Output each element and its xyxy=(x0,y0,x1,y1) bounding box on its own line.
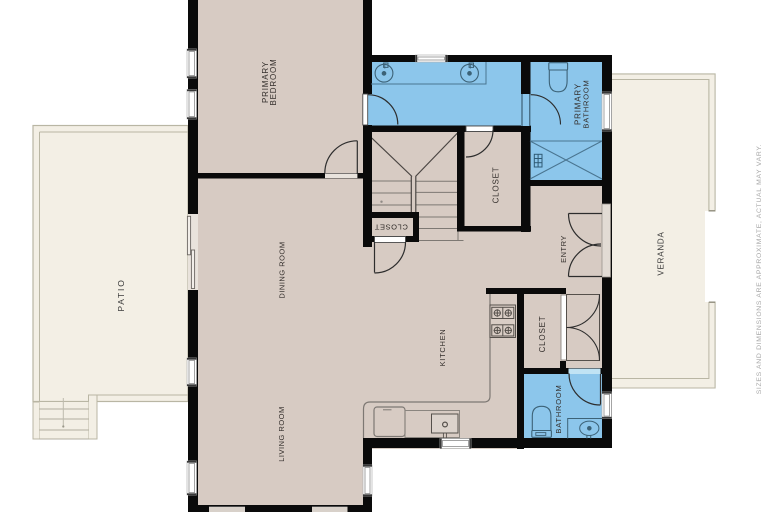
svg-text:PATIO: PATIO xyxy=(116,278,126,311)
svg-text:BATHROOM: BATHROOM xyxy=(582,79,591,128)
svg-text:CLOSET: CLOSET xyxy=(492,167,501,204)
svg-text:ENTRY: ENTRY xyxy=(559,235,568,263)
svg-text:BATHROOM: BATHROOM xyxy=(554,384,563,433)
svg-text:DINING ROOM: DINING ROOM xyxy=(278,241,287,298)
svg-text:VERANDA: VERANDA xyxy=(657,231,666,275)
svg-text:LIVING ROOM: LIVING ROOM xyxy=(277,406,286,462)
svg-text:CLOSET: CLOSET xyxy=(538,316,547,353)
svg-text:SIZES AND DIMENSIONS ARE APPRO: SIZES AND DIMENSIONS ARE APPROXIMATE, AC… xyxy=(756,144,763,395)
svg-text:CLOSET: CLOSET xyxy=(374,223,408,232)
svg-text:BEDROOM: BEDROOM xyxy=(269,59,278,106)
svg-text:KITCHEN: KITCHEN xyxy=(438,329,447,367)
